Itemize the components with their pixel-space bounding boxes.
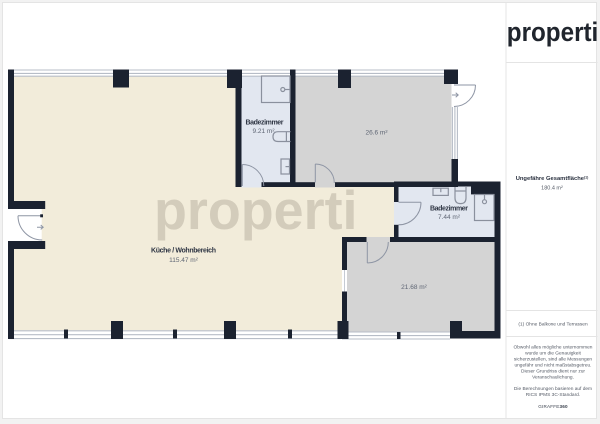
svg-text:RICS IPMS 3C-Standard.: RICS IPMS 3C-Standard. bbox=[526, 392, 580, 398]
svg-text:Die Berechnungen basieren auf: Die Berechnungen basieren auf dem bbox=[514, 386, 592, 392]
svg-text:properti: properti bbox=[507, 17, 599, 47]
svg-text:21.68 m²: 21.68 m² bbox=[401, 284, 427, 291]
svg-text:Obwohl alles mögliche unternom: Obwohl alles mögliche unternommen bbox=[514, 345, 593, 351]
svg-text:Ungefähre Gesamtfläche(1): Ungefähre Gesamtfläche(1) bbox=[516, 176, 589, 183]
svg-text:9.21 m²: 9.21 m² bbox=[252, 128, 275, 135]
svg-text:GIRAFFE360: GIRAFFE360 bbox=[538, 404, 568, 409]
svg-text:180.4 m²: 180.4 m² bbox=[541, 186, 563, 192]
svg-text:wurde um die Genauigkeit: wurde um die Genauigkeit bbox=[525, 351, 581, 357]
svg-text:ungefähr und nicht maßstabsget: ungefähr und nicht maßstabsgetreu. bbox=[514, 363, 591, 369]
svg-text:sicherzustellen, sind alle Mes: sicherzustellen, sind alle Messungen bbox=[514, 357, 592, 363]
svg-text:26.6 m²: 26.6 m² bbox=[365, 130, 388, 137]
svg-text:115.47 m²: 115.47 m² bbox=[169, 257, 199, 264]
svg-text:Dieser Grundriss dient nur zur: Dieser Grundriss dient nur zur bbox=[521, 369, 585, 375]
svg-text:Veranschaulichung.: Veranschaulichung. bbox=[532, 375, 574, 381]
svg-text:Badezimmer: Badezimmer bbox=[430, 206, 468, 213]
svg-text:7.44 m²: 7.44 m² bbox=[438, 214, 461, 221]
svg-text:properti: properti bbox=[154, 179, 358, 241]
svg-text:(1) Ohne Balkone und Terrassen: (1) Ohne Balkone und Terrassen bbox=[518, 322, 588, 328]
svg-text:Badezimmer: Badezimmer bbox=[246, 120, 284, 127]
svg-text:Küche / Wohnbereich: Küche / Wohnbereich bbox=[151, 248, 216, 255]
